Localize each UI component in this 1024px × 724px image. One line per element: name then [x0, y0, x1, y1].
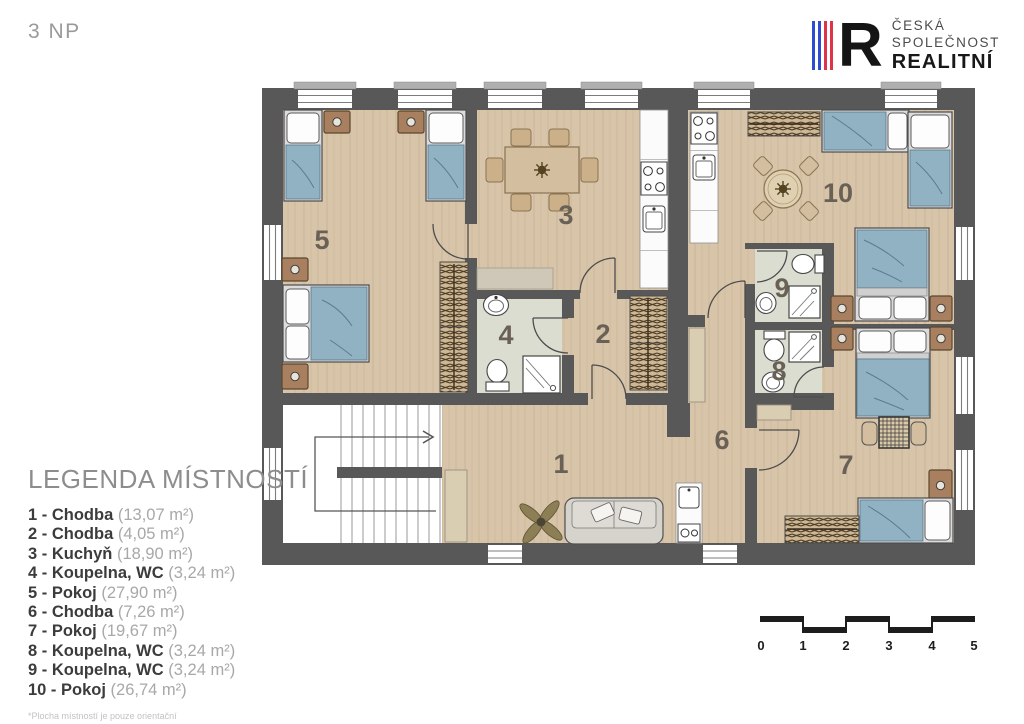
- nightstand: [929, 470, 952, 501]
- legend-footnote: *Plocha místností je pouze orientační: [28, 711, 338, 721]
- wardrobe: [785, 516, 859, 543]
- legend-title: LEGENDA MÍSTNOSTÍ: [28, 464, 338, 495]
- room-label-6: 6: [714, 425, 729, 455]
- scale-label-4: 4: [928, 638, 936, 653]
- scale-bar: 0 1 2 3 4 5: [757, 616, 977, 653]
- sink-icon: [643, 206, 665, 232]
- sink-icon: [693, 155, 715, 180]
- scale-label-0: 0: [757, 638, 764, 653]
- wardrobe: [748, 112, 820, 136]
- double-bed: [283, 285, 369, 362]
- logo-line-3: REALITNÍ: [892, 51, 1000, 73]
- sink-icon: [756, 293, 776, 314]
- logo-stripes: [812, 21, 834, 70]
- logo-stripe: [818, 21, 822, 70]
- nightstand: [831, 327, 853, 350]
- toilet-icon: [486, 360, 509, 392]
- legend-item-2: 2 - Chodba (4,05 m²): [28, 525, 338, 544]
- single-bed: [858, 498, 953, 543]
- room-label-5: 5: [314, 225, 329, 255]
- shower-icon: [789, 286, 820, 318]
- logo-line-2: SPOLEČNOST: [892, 35, 1000, 52]
- room-label-4: 4: [498, 320, 513, 350]
- shower-icon: [523, 356, 560, 393]
- nightstand: [282, 258, 308, 281]
- stove-icon: [678, 524, 700, 542]
- logo-line-1: ČESKÁ: [892, 18, 1000, 35]
- logo-letter: R: [838, 21, 881, 70]
- legend-item-4: 4 - Koupelna, WC (3,24 m²): [28, 564, 338, 583]
- legend-item-7: 7 - Pokoj (19,67 m²): [28, 622, 338, 641]
- room-label-9: 9: [774, 273, 789, 303]
- scale-label-3: 3: [885, 638, 892, 653]
- nightstand: [831, 296, 853, 321]
- room-label-7: 7: [838, 450, 853, 480]
- room-label-3: 3: [558, 200, 573, 230]
- sink-icon: [484, 295, 509, 316]
- nightstand: [324, 111, 350, 133]
- company-logo: R ČESKÁ SPOLEČNOST REALITNÍ: [812, 18, 1000, 73]
- room-label-1: 1: [553, 449, 568, 479]
- legend-item-1: 1 - Chodba (13,07 m²): [28, 506, 338, 525]
- double-bed: [855, 228, 929, 321]
- single-bed: [822, 110, 909, 152]
- kitchen-line: [690, 112, 718, 243]
- room-label-2: 2: [595, 319, 610, 349]
- legend-item-8: 8 - Koupelna, WC (3,24 m²): [28, 642, 338, 661]
- legend-item-10: 10 - Pokoj (26,74 m²): [28, 681, 338, 700]
- stove-icon: [691, 113, 717, 144]
- shower-icon: [789, 332, 820, 362]
- logo-text: ČESKÁ SPOLEČNOST REALITNÍ: [892, 18, 1000, 73]
- single-bed: [284, 110, 322, 201]
- logo-mark: R: [812, 19, 881, 73]
- legend-item-6: 6 - Chodba (7,26 m²): [28, 603, 338, 622]
- double-bed: [856, 328, 930, 418]
- scale-label-2: 2: [842, 638, 849, 653]
- room-label-10: 10: [823, 178, 853, 208]
- nightstand: [282, 364, 308, 389]
- sofa: [565, 498, 663, 544]
- cabinet: [445, 470, 467, 542]
- kitchen-line: [640, 110, 668, 288]
- single-bed: [426, 110, 466, 201]
- kitchenette: [676, 483, 702, 543]
- stove-icon: [641, 162, 667, 195]
- nightstand: [930, 327, 952, 350]
- scale-label-1: 1: [799, 638, 806, 653]
- nightstand: [930, 296, 952, 321]
- legend-item-9: 9 - Koupelna, WC (3,24 m²): [28, 661, 338, 680]
- wardrobe: [440, 262, 468, 392]
- logo-stripe: [812, 21, 816, 70]
- window-sills: [294, 82, 941, 89]
- legend-items: 1 - Chodba (13,07 m²) 2 - Chodba (4,05 m…: [28, 506, 338, 700]
- kitchen-counter: [477, 268, 553, 289]
- logo-stripe: [824, 21, 828, 70]
- floor-title: 3 NP: [28, 20, 81, 44]
- nightstand: [398, 111, 424, 133]
- scale-label-5: 5: [970, 638, 977, 653]
- cabinet: [689, 328, 705, 402]
- logo-stripe: [830, 21, 834, 70]
- legend-item-3: 3 - Kuchyň (18,90 m²): [28, 545, 338, 564]
- table-with-chairs: [862, 417, 926, 448]
- legend: LEGENDA MÍSTNOSTÍ 1 - Chodba (13,07 m²) …: [28, 464, 338, 721]
- room-label-8: 8: [771, 356, 786, 386]
- toilet-icon: [792, 255, 824, 274]
- bench: [757, 405, 791, 420]
- single-bed: [908, 112, 952, 208]
- room2-wardrobe: [630, 296, 667, 390]
- legend-item-5: 5 - Pokoj (27,90 m²): [28, 584, 338, 603]
